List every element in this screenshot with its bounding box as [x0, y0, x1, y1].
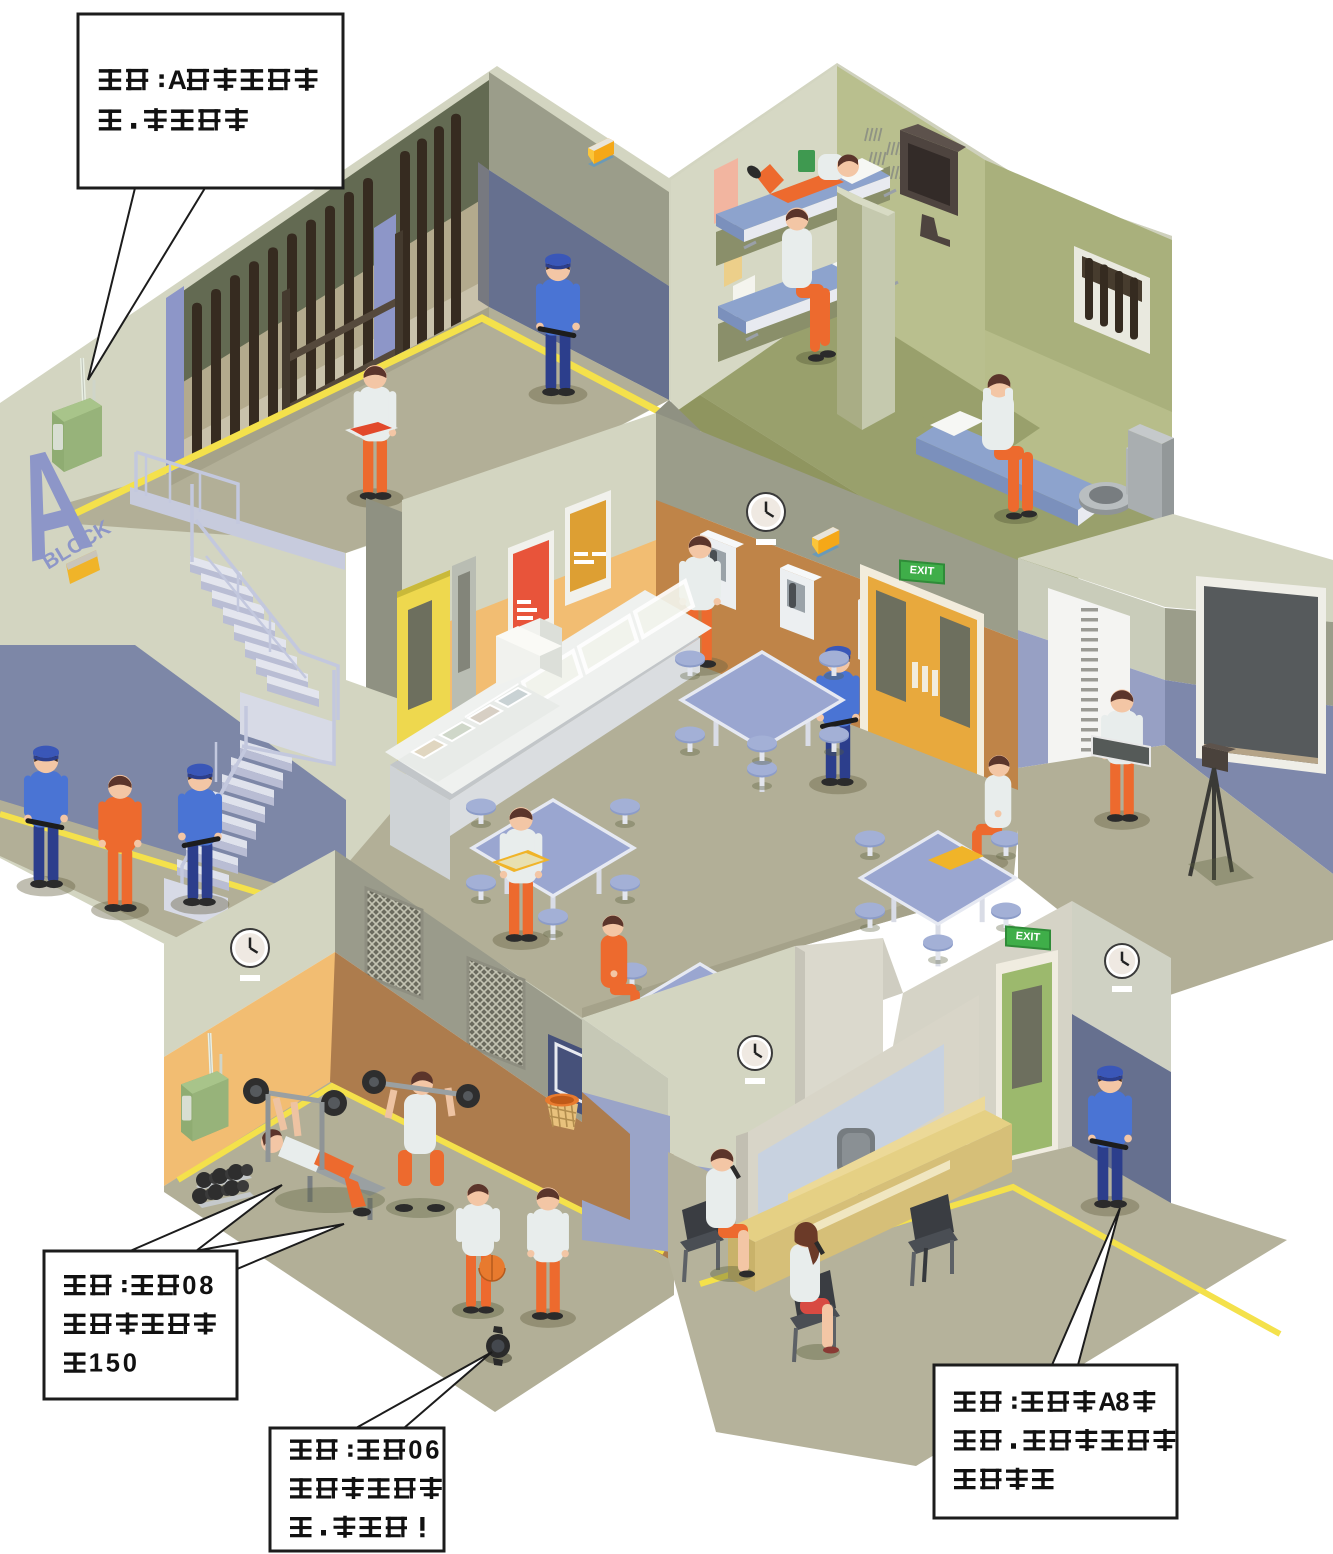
svg-text:0: 0 — [123, 1350, 137, 1378]
svg-text:A: A — [168, 65, 187, 95]
svg-text:1: 1 — [89, 1350, 103, 1378]
svg-text:0: 0 — [182, 1272, 196, 1300]
svg-text:8: 8 — [1115, 1389, 1129, 1417]
svg-text:A: A — [1098, 1389, 1116, 1417]
svg-text:EXIT: EXIT — [1015, 930, 1041, 944]
svg-text:EXIT: EXIT — [909, 564, 935, 578]
svg-text:0: 0 — [408, 1437, 422, 1465]
svg-text:6: 6 — [425, 1437, 439, 1465]
svg-text:5: 5 — [106, 1350, 120, 1378]
svg-text:8: 8 — [199, 1272, 213, 1300]
